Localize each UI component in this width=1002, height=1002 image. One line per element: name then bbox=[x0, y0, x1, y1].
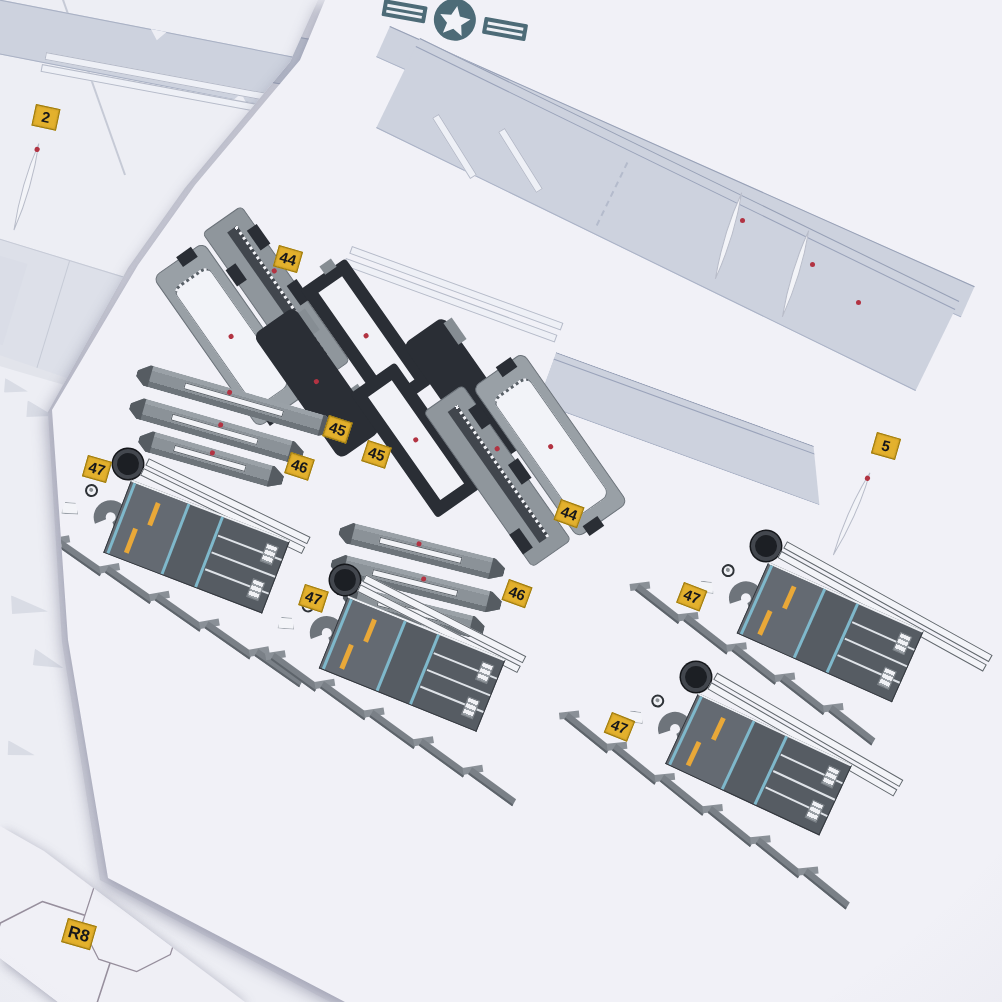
wheel-disc bbox=[747, 527, 786, 566]
small-trapezoid-outline bbox=[61, 502, 79, 515]
main-sheet: 5 bbox=[0, 0, 1002, 1002]
papercraft-sheets-photo: 2 R8 R bbox=[0, 0, 1002, 1002]
dark-patch bbox=[496, 357, 518, 377]
registration-dot bbox=[810, 262, 815, 267]
band-line bbox=[553, 359, 835, 463]
main-sheet-wrap: 5 bbox=[0, 0, 1002, 1002]
wheel-disc bbox=[109, 445, 147, 483]
registration-dot bbox=[740, 218, 745, 223]
part-number-tag: 46 bbox=[501, 579, 532, 608]
fold-dash-line bbox=[596, 162, 628, 226]
small-trapezoid-outline bbox=[277, 617, 295, 630]
dark-patch bbox=[176, 247, 198, 267]
registration-dot bbox=[313, 378, 320, 385]
part-number-tag: 5 bbox=[871, 432, 901, 460]
registration-dot bbox=[363, 332, 370, 339]
part-number-tag: 46 bbox=[284, 452, 315, 481]
fold-strip-chevron bbox=[458, 760, 521, 808]
registration-dot bbox=[856, 300, 861, 305]
registration-dot bbox=[412, 436, 419, 443]
fold-strip-chevron bbox=[793, 861, 856, 911]
band-line bbox=[416, 46, 956, 310]
part-number-tag: 47 bbox=[82, 455, 112, 483]
propeller-blade-outline bbox=[823, 466, 880, 562]
dark-patch bbox=[583, 516, 605, 536]
